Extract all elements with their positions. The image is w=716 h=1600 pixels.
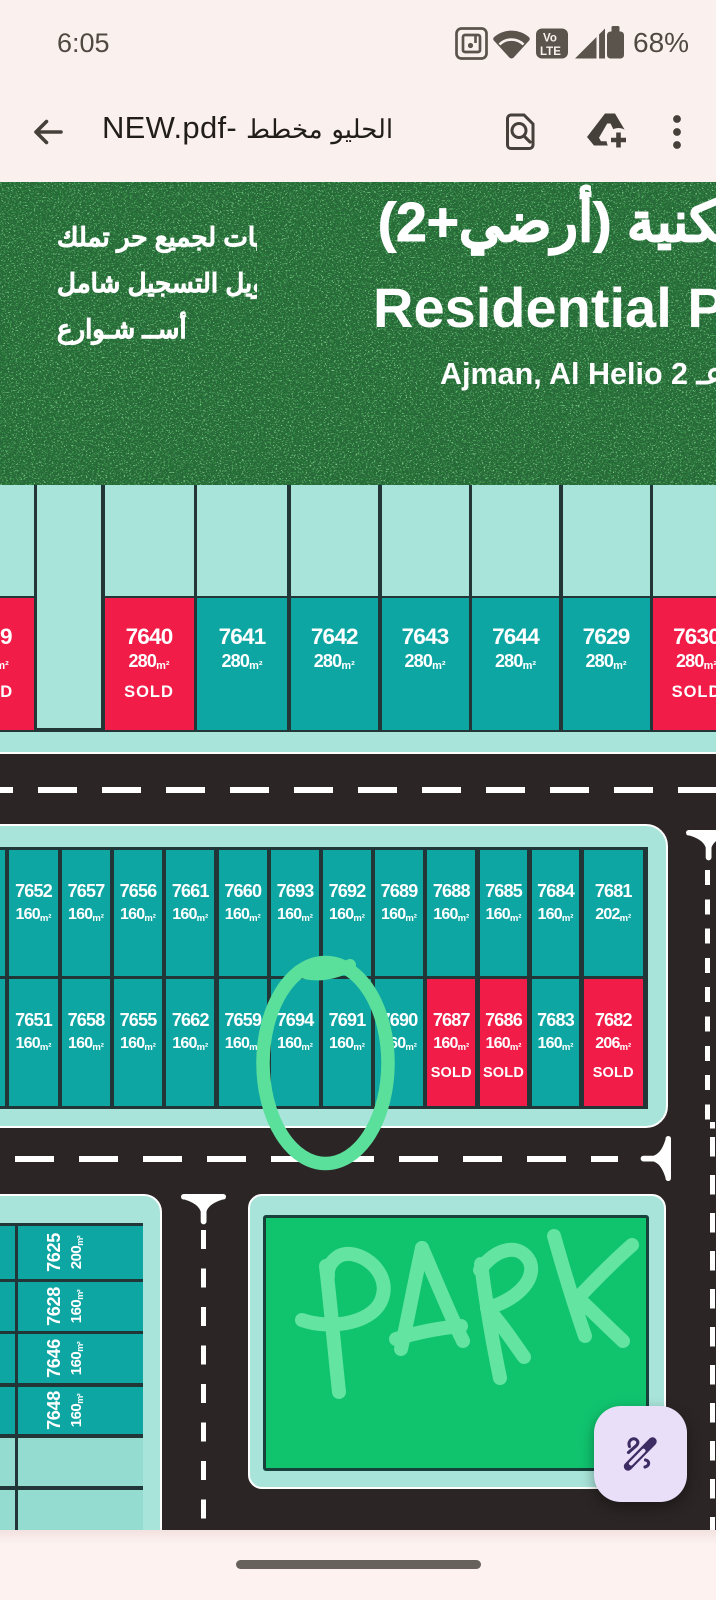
svg-text:Vo: Vo [543, 33, 557, 45]
svg-text:LTE: LTE [540, 46, 561, 58]
